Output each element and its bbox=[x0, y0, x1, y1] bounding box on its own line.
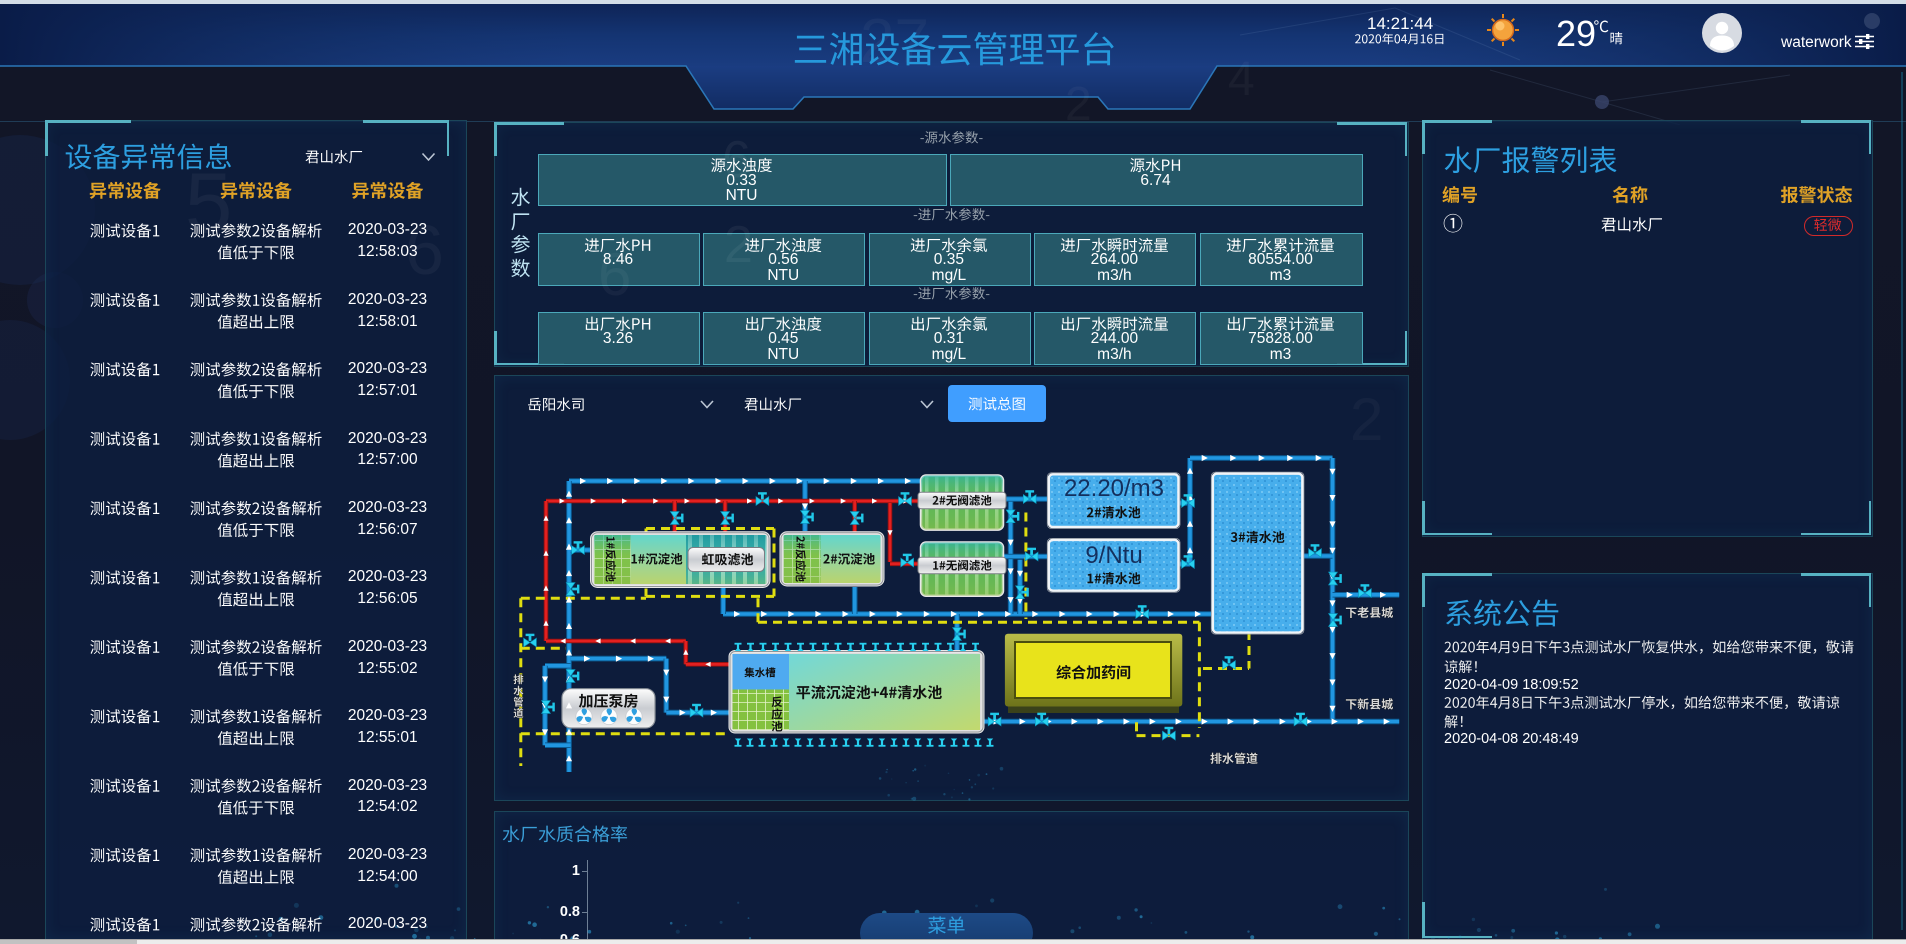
svg-text:2: 2 bbox=[1065, 78, 1092, 125]
svg-text:4: 4 bbox=[1228, 53, 1255, 106]
svg-text:27: 27 bbox=[860, 7, 929, 76]
